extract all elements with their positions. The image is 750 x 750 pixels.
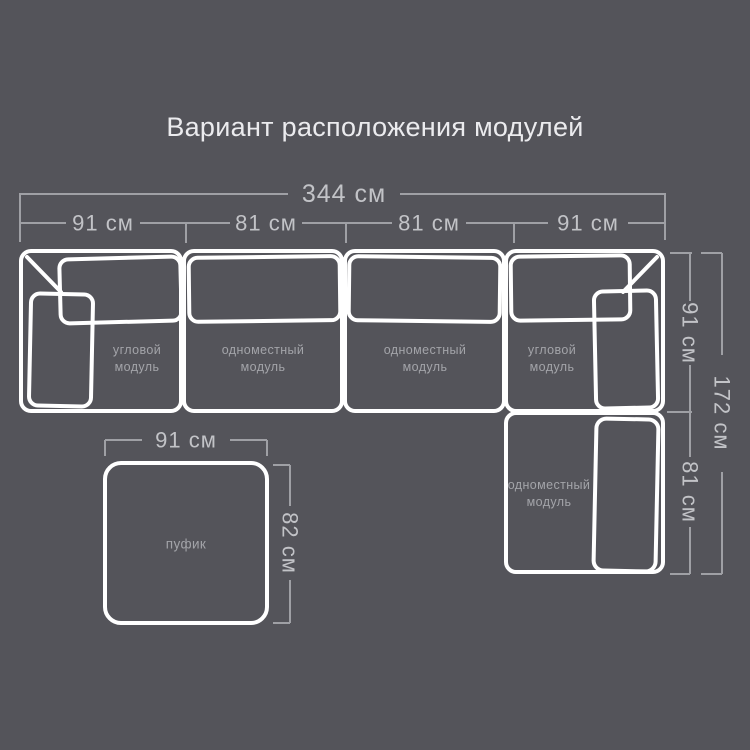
back-cushion: [349, 256, 501, 322]
module-single-2: одноместный модуль: [345, 251, 504, 411]
module-label: одноместный: [508, 478, 591, 492]
product-dimensions-image: Вариант расположения модулей 344 см 91 с…: [0, 0, 750, 750]
module-single-bottom: одноместный модуль: [506, 413, 663, 572]
module-label: угловой: [528, 343, 576, 357]
dimension-label-pouf-width: 91 см: [155, 428, 217, 453]
corner-diagonal-line: [27, 257, 61, 292]
back-cushion: [511, 255, 631, 320]
dimension-pouf: 91 см 82 см: [105, 428, 303, 624]
dimension-top-segments: 91 см 81 см 81 см 91 см: [20, 211, 665, 244]
dimension-label-segment-1: 91 см: [72, 211, 134, 236]
module-outline: [184, 251, 342, 411]
dimension-label-segment-4: 91 см: [557, 211, 619, 236]
pouf: пуфик: [105, 463, 267, 623]
pouf-label: пуфик: [166, 537, 206, 552]
module-outline: [506, 413, 663, 572]
dimension-label-right-overall: 172 см: [710, 376, 735, 451]
back-cushion: [189, 256, 341, 322]
dimension-right-side: 91 см 81 см 172 см: [667, 253, 735, 574]
module-corner-left: угловой модуль: [21, 251, 182, 411]
module-label: модуль: [403, 360, 448, 374]
module-single-1: одноместный модуль: [184, 251, 342, 411]
module-label: одноместный: [222, 343, 305, 357]
dimension-label-segment-2: 81 см: [235, 211, 297, 236]
module-label: модуль: [115, 360, 160, 374]
dimension-label-total-width: 344 см: [302, 180, 386, 208]
dimension-label-right-top: 91 см: [678, 302, 703, 364]
dimension-label-right-bottom: 81 см: [678, 461, 703, 523]
dimension-label-pouf-depth: 82 см: [278, 512, 303, 574]
side-cushion: [593, 418, 658, 571]
module-label: модуль: [530, 360, 575, 374]
module-label: модуль: [527, 495, 572, 509]
module-label: одноместный: [384, 343, 467, 357]
back-cushion: [59, 256, 182, 323]
side-cushion: [594, 290, 658, 408]
sofa-layout-diagram: 344 см 91 см 81 см 81 см 91 см: [0, 0, 750, 750]
dimension-label-segment-3: 81 см: [398, 211, 460, 236]
module-corner-right: угловой модуль: [506, 251, 663, 411]
module-label: угловой: [113, 343, 161, 357]
module-outline: [345, 251, 504, 411]
module-label: модуль: [241, 360, 286, 374]
